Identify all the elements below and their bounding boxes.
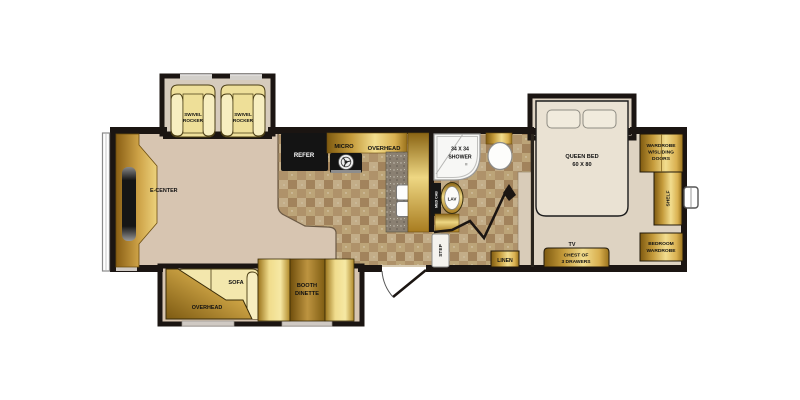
svg-text:SOFA: SOFA — [228, 280, 243, 286]
svg-text:ROCKER: ROCKER — [233, 118, 254, 123]
svg-text:60 X 80: 60 X 80 — [572, 162, 591, 168]
svg-text:DINETTE: DINETTE — [295, 291, 319, 297]
svg-text:MICRO: MICRO — [334, 144, 354, 150]
svg-text:QUEEN BED: QUEEN BED — [565, 154, 598, 160]
svg-text:ROCKER: ROCKER — [183, 118, 204, 123]
svg-text:34 X 34: 34 X 34 — [451, 147, 469, 153]
svg-text:REFER: REFER — [294, 153, 315, 159]
svg-text:BOOTH: BOOTH — [297, 283, 317, 289]
svg-text:CHEST OF: CHEST OF — [564, 253, 589, 259]
svg-text:W/SLIDING: W/SLIDING — [648, 150, 674, 156]
svg-text:LAV: LAV — [448, 197, 458, 202]
svg-text:WARDROBE: WARDROBE — [646, 248, 676, 254]
svg-text:OVERHEAD: OVERHEAD — [192, 305, 223, 311]
svg-text:SHELF: SHELF — [666, 190, 672, 206]
svg-text:3 DRAWERS: 3 DRAWERS — [561, 259, 591, 265]
svg-text:STEP: STEP — [438, 243, 444, 256]
svg-text:TV: TV — [569, 242, 576, 248]
svg-text:SWIVEL: SWIVEL — [234, 112, 252, 117]
svg-text:SWIVEL: SWIVEL — [184, 112, 202, 117]
svg-text:OVERHEAD: OVERHEAD — [368, 146, 401, 152]
svg-text:E-CENTER: E-CENTER — [150, 188, 178, 194]
svg-text:LINEN: LINEN — [497, 258, 513, 264]
svg-text:BEDROOM: BEDROOM — [648, 241, 674, 247]
svg-text:MED CAB: MED CAB — [435, 191, 439, 208]
svg-text:SHOWER: SHOWER — [448, 155, 472, 161]
